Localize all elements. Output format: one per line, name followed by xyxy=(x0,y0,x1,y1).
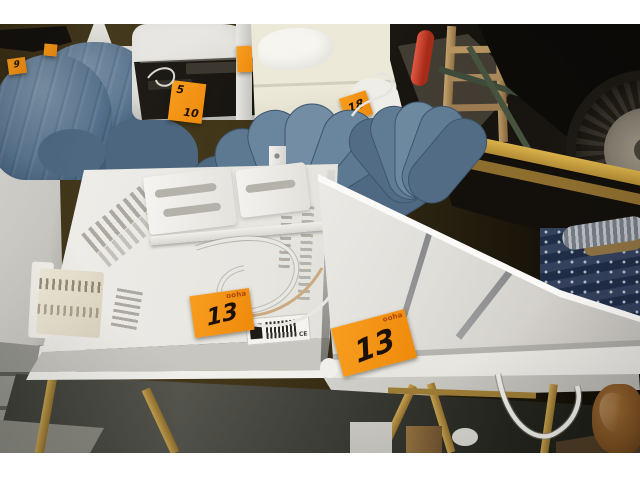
heater-mounting-bracket xyxy=(235,162,310,218)
label-barcode xyxy=(265,319,296,339)
heater-mounting-bracket xyxy=(143,167,237,235)
wooden-post xyxy=(406,426,442,453)
letterboxed-photo-frame: 9 5 10 18 xyxy=(0,0,640,480)
heater-product-label: CE xyxy=(245,313,311,345)
white-round-object xyxy=(452,428,478,446)
bracket-slot xyxy=(154,183,217,198)
small-white-cabinet xyxy=(350,422,392,453)
heater-lip-corner xyxy=(320,358,338,378)
heater-terminal-block xyxy=(36,268,104,338)
bracket-slot xyxy=(245,179,296,193)
lot-number: 13 xyxy=(192,295,253,336)
auction-lot-photo: 9 5 10 18 xyxy=(0,24,640,453)
bracket-slot xyxy=(163,202,222,217)
lot-sticker-heater-back: ooha 13 xyxy=(189,288,254,338)
ce-mark: CE xyxy=(299,330,308,338)
